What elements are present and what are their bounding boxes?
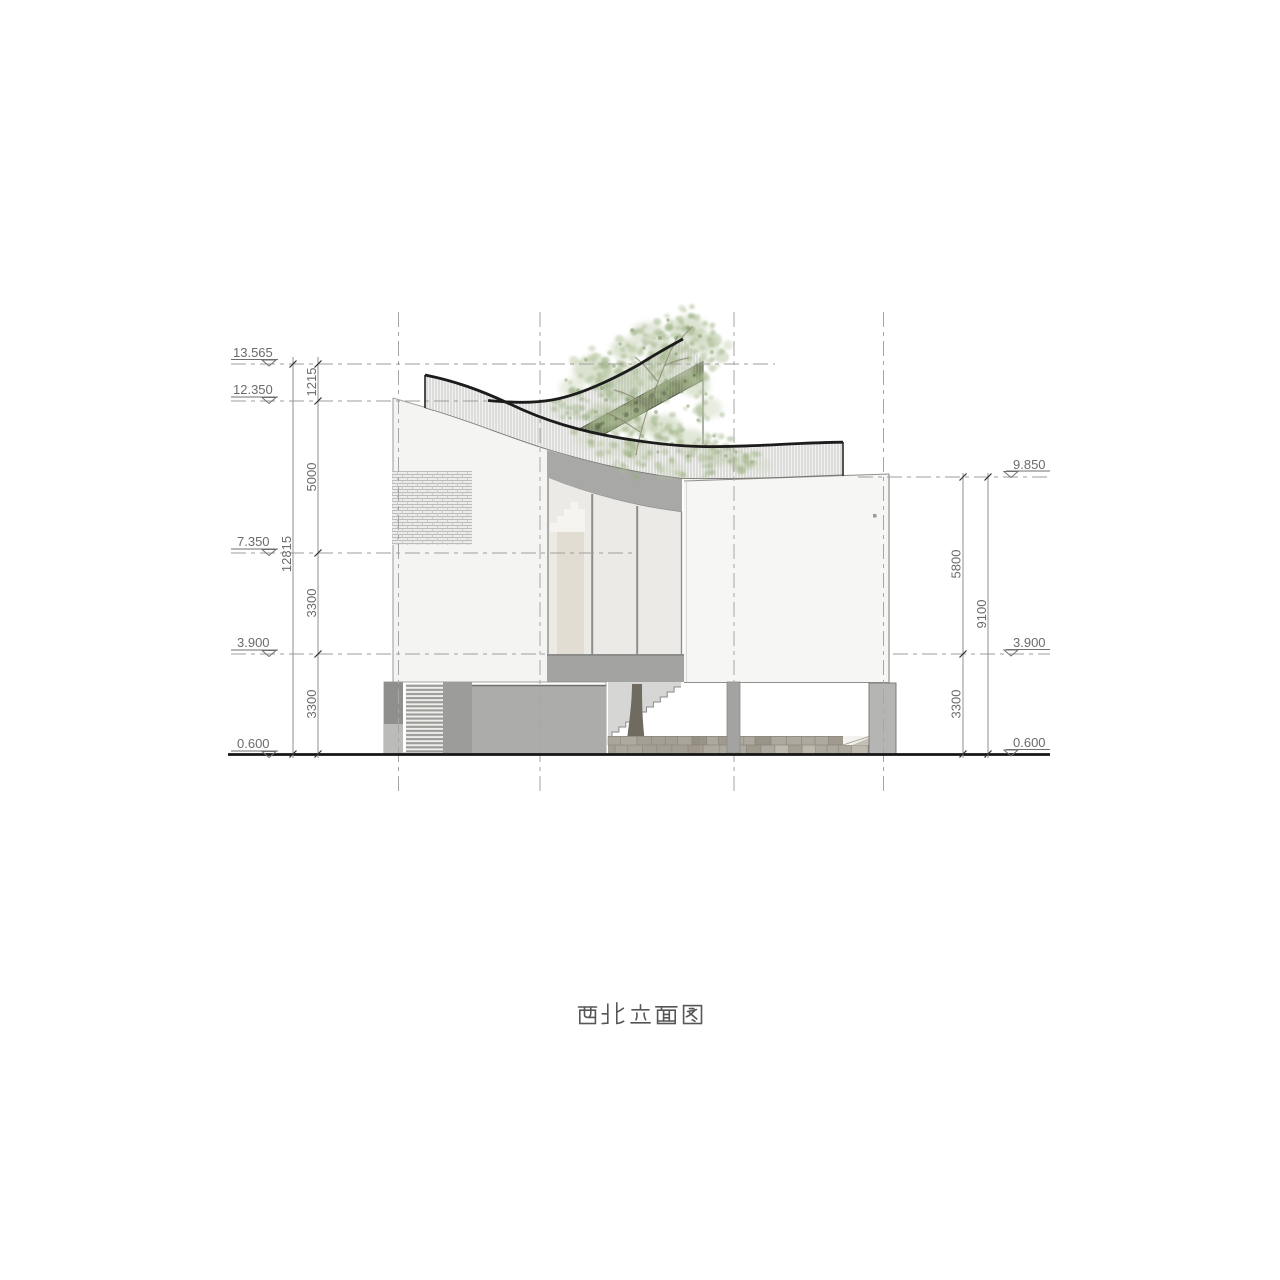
svg-text:3300: 3300 [949, 690, 964, 719]
svg-text:0.600: 0.600 [237, 736, 270, 751]
svg-text:3300: 3300 [304, 690, 319, 719]
svg-text:9.850: 9.850 [1013, 457, 1046, 472]
svg-text:5000: 5000 [304, 463, 319, 492]
svg-text:9100: 9100 [974, 600, 989, 629]
svg-text:13.565: 13.565 [233, 345, 273, 360]
svg-text:3.900: 3.900 [237, 635, 270, 650]
svg-text:12815: 12815 [279, 536, 294, 572]
svg-text:5800: 5800 [949, 550, 964, 579]
svg-text:3.900: 3.900 [1013, 635, 1046, 650]
svg-text:0.600: 0.600 [1013, 735, 1046, 750]
svg-text:12.350: 12.350 [233, 382, 273, 397]
svg-text:7.350: 7.350 [237, 534, 270, 549]
svg-text:3300: 3300 [304, 589, 319, 618]
svg-text:1215: 1215 [304, 368, 319, 397]
